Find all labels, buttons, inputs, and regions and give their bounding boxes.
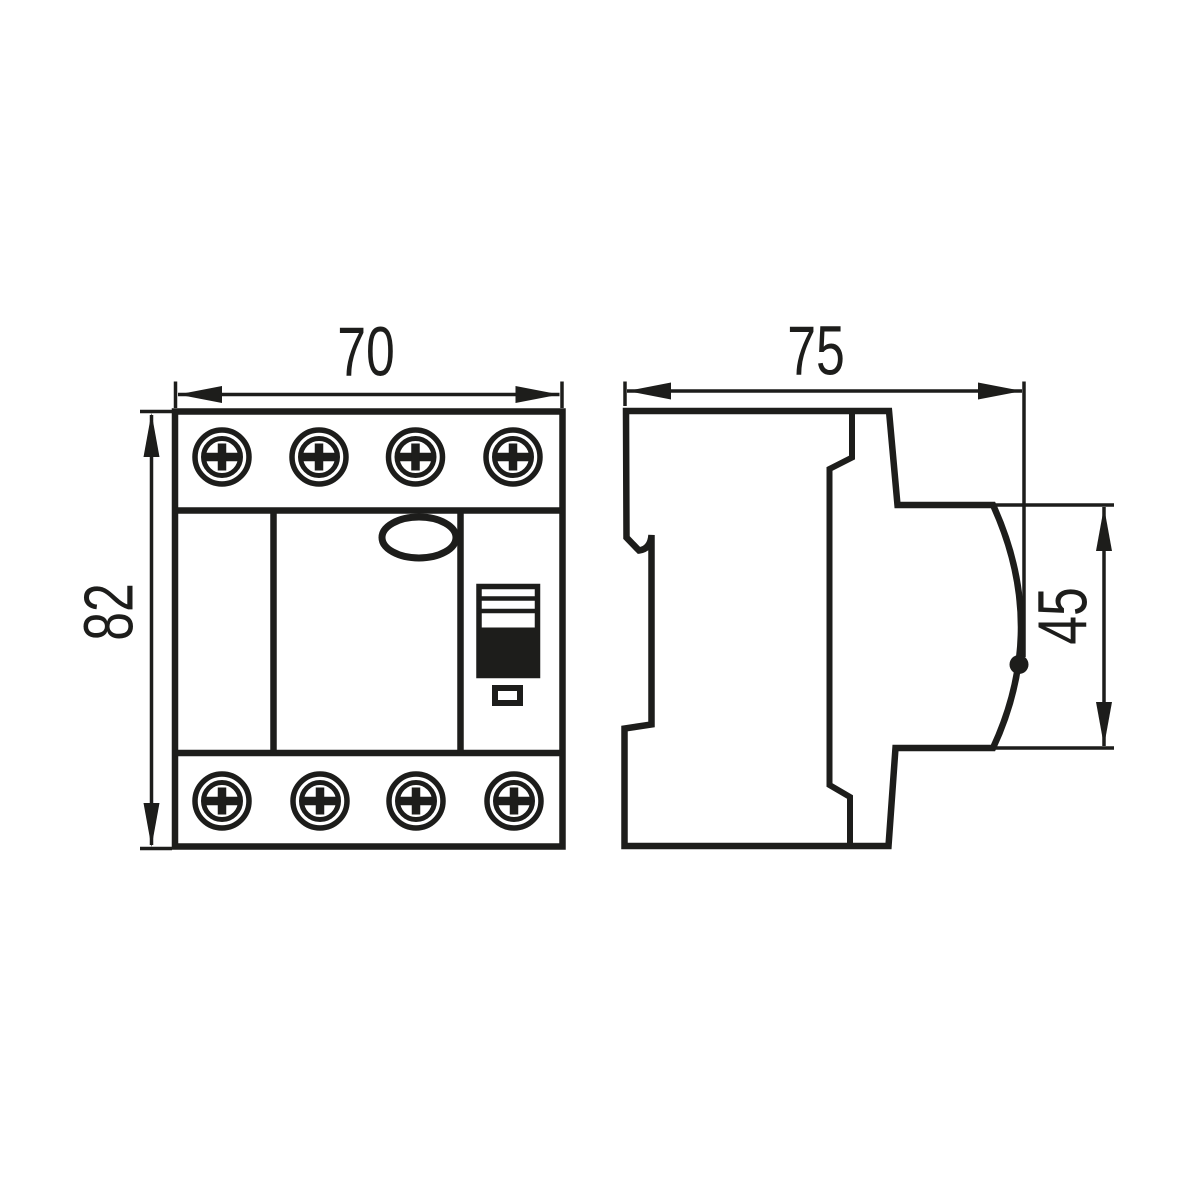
terminal-screw-icon [195, 430, 249, 484]
terminal-screw-icon [389, 774, 443, 828]
arrowhead-up-icon [144, 413, 160, 457]
arrowhead-left-icon [178, 386, 222, 403]
terminal-screw-icon [292, 430, 346, 484]
terminal-screw-icon [486, 430, 540, 484]
side-profile-outline [625, 411, 1022, 846]
arrowhead-up-icon [1096, 507, 1112, 551]
indicator-window [495, 688, 520, 703]
test-button-oval-icon [382, 517, 456, 558]
arrowhead-right-icon [978, 383, 1022, 400]
dimension-label-height: 82 [70, 583, 148, 641]
dimension-label-depth: 75 [787, 312, 845, 390]
dimension-label-face-height: 45 [1024, 587, 1102, 645]
terminal-screw-icon [293, 774, 347, 828]
drawing-canvas: 70 82 75 45 [0, 0, 1200, 1200]
tangent-dot-icon [1010, 655, 1029, 674]
terminal-screw-icon [195, 774, 249, 828]
dimension-drawing: 70 82 75 45 [0, 0, 1200, 1200]
arrowhead-down-icon [144, 803, 160, 847]
toggle-switch-icon [477, 587, 541, 676]
side-view [625, 411, 1029, 846]
terminal-screw-icon [487, 774, 541, 828]
dimension-front-height: 82 [70, 412, 173, 849]
switch-handle [477, 628, 541, 676]
terminal-screw-icon [389, 430, 443, 484]
arrowhead-left-icon [627, 383, 671, 400]
arrowhead-right-icon [516, 386, 560, 403]
dimension-label-width: 70 [337, 313, 395, 391]
dimension-front-width: 70 [176, 313, 563, 408]
front-view [175, 412, 563, 847]
arrowhead-down-icon [1096, 702, 1112, 746]
